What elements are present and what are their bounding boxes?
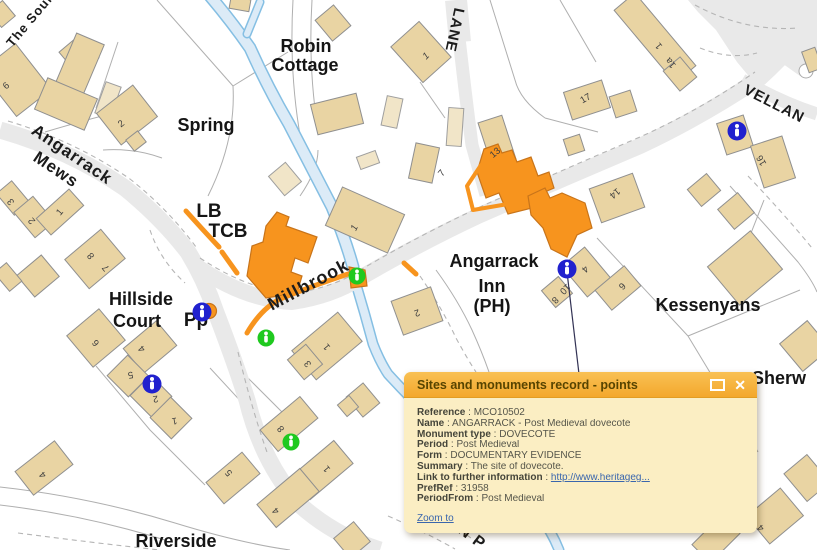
zoom-to-row: Zoom to [417, 514, 745, 525]
field-value: Post Medieval [456, 440, 519, 450]
close-icon[interactable]: ✕ [734, 378, 746, 392]
place-label: Riverside [135, 531, 216, 550]
place-label: LB [196, 201, 221, 222]
maximize-icon[interactable] [710, 379, 725, 391]
blue-info-marker[interactable] [728, 122, 747, 141]
field-separator: : [491, 430, 499, 440]
field-label: PrefRef [417, 484, 453, 494]
field-value: MCO10502 [474, 408, 525, 418]
field-form: Form : DOCUMENTARY EVIDENCE [417, 451, 745, 462]
green-info-marker[interactable] [258, 330, 275, 347]
blue-info-marker[interactable] [143, 375, 162, 394]
place-label: (PH) [474, 296, 511, 316]
field-value: Post Medieval [481, 494, 544, 504]
building [446, 108, 464, 147]
blue-info-marker[interactable] [193, 303, 212, 322]
field-label: Summary [417, 462, 463, 472]
field-label: Link to further information [417, 473, 543, 483]
place-label: Inn [479, 276, 506, 296]
field-label: Monument type [417, 430, 491, 440]
place-label: TCB [208, 221, 247, 242]
field-link: Link to further information : http://www… [417, 473, 745, 484]
place-label: Spring [178, 115, 235, 135]
popup-header[interactable]: Sites and monuments record - points ✕ [404, 372, 757, 398]
popup-body: Reference : MCO10502 Name : ANGARRACK - … [404, 398, 757, 525]
field-summary: Summary : The site of dovecote. [417, 462, 745, 473]
place-label: Sherw [752, 368, 807, 388]
popup-sites-monuments: Sites and monuments record - points ✕ Re… [404, 372, 757, 533]
place-label: Cottage [272, 55, 339, 75]
field-label: Reference [417, 408, 465, 418]
field-label: Form [417, 451, 442, 461]
field-value: ANGARRACK - Post Medieval dovecote [452, 419, 630, 429]
field-label: Period [417, 440, 448, 450]
field-separator: : [465, 408, 473, 418]
field-period: Period : Post Medieval [417, 440, 745, 451]
popup-controls: ✕ [710, 378, 757, 392]
field-label: Name [417, 419, 444, 429]
field-value: DOVECOTE [499, 430, 555, 440]
field-periodfrom: PeriodFrom : Post Medieval [417, 494, 745, 505]
green-info-marker[interactable] [349, 268, 366, 285]
field-reference: Reference : MCO10502 [417, 408, 745, 419]
field-value: The site of dovecote. [471, 462, 564, 472]
place-label: Court [113, 311, 161, 331]
map-viewer: Robin Cottage Spring Hillside Court LB T… [0, 0, 817, 550]
field-prefref: PrefRef : 31958 [417, 484, 745, 495]
field-separator: : [463, 462, 471, 472]
place-label: Angarrack [449, 251, 539, 271]
popup-title: Sites and monuments record - points [404, 378, 710, 392]
place-label: Kessenyans [655, 295, 760, 315]
zoom-to-link[interactable]: Zoom to [417, 513, 454, 524]
field-name: Name : ANGARRACK - Post Medieval dovecot… [417, 419, 745, 430]
place-label: Robin [281, 36, 332, 56]
heritage-link[interactable]: http://www.heritageg... [551, 473, 650, 483]
field-label: PeriodFrom [417, 494, 473, 504]
field-separator: : [453, 484, 461, 494]
green-info-marker[interactable] [283, 434, 300, 451]
field-separator: : [543, 473, 551, 483]
field-value: DOCUMENTARY EVIDENCE [450, 451, 581, 461]
field-monument-type: Monument type : DOVECOTE [417, 430, 745, 441]
field-separator: : [444, 419, 452, 429]
blue-info-marker[interactable] [558, 260, 577, 279]
field-value: 31958 [461, 484, 489, 494]
place-label: Hillside [109, 289, 173, 309]
